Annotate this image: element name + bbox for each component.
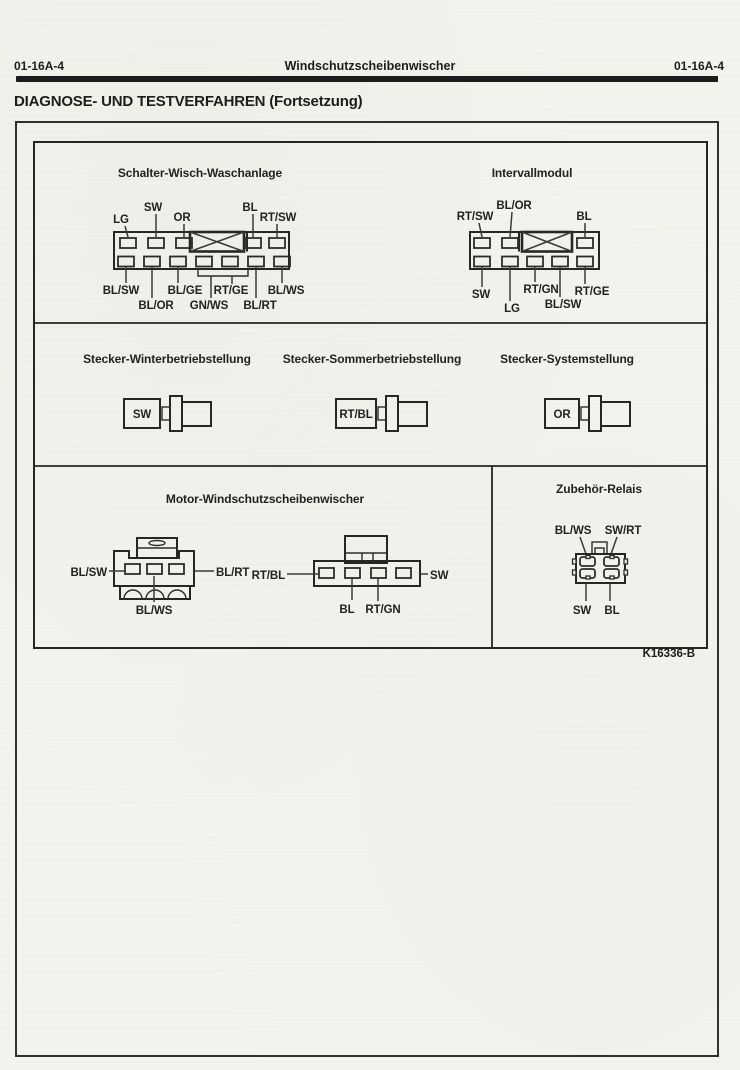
pin xyxy=(196,257,212,267)
wire-label: BL/OR xyxy=(138,300,174,312)
panel-title: Stecker-Systemstellung xyxy=(500,352,634,366)
panel-zubehoer-relais: Zubehör-Relais BL/WS SW/RT xyxy=(555,482,643,617)
pin xyxy=(319,568,334,578)
stecker-systemstellung: Stecker-Systemstellung OR xyxy=(500,352,634,431)
wire-label: RT/BL xyxy=(252,570,285,582)
figure-box: Schalter-Wisch-Waschanlage xyxy=(33,141,708,649)
figure-code: K16336-B xyxy=(460,648,695,660)
page-number-right: 01-16A-4 xyxy=(674,59,724,73)
wire-label: BL/WS xyxy=(555,525,592,537)
wire-label: BL/RT xyxy=(216,567,249,579)
wire-label: BL/RT xyxy=(243,300,276,312)
panel-title: Stecker-Sommerbetriebstellung xyxy=(283,352,462,366)
wire-label: BL/SW xyxy=(70,567,107,579)
wire-label: BL/WS xyxy=(268,285,305,297)
pin xyxy=(170,257,186,267)
pin xyxy=(269,238,285,248)
pin xyxy=(120,238,136,248)
panel-motor-windschutzscheibenwischer: Motor-Windschutzscheibenwischer BL/SW xyxy=(70,492,448,617)
panel-title: Stecker-Winterbetriebstellung xyxy=(83,352,251,366)
wire-label: RT/GE xyxy=(214,285,249,297)
pin xyxy=(345,568,360,578)
pin xyxy=(552,257,568,267)
pin xyxy=(577,238,593,248)
wire-label: RT/GN xyxy=(365,604,400,616)
panel-title: Motor-Windschutzscheibenwischer xyxy=(166,492,365,506)
wire-label: BL/OR xyxy=(496,200,532,212)
pin xyxy=(248,257,264,267)
figure-diagram: Schalter-Wisch-Waschanlage xyxy=(35,143,706,647)
connector-intervallmodul: Intervallmodul xyxy=(457,166,610,315)
plug-icon xyxy=(581,396,630,431)
motor-connector-b: RT/BL SW BL RT/GN xyxy=(252,536,449,616)
wire-label: GN/WS xyxy=(190,300,229,312)
pin xyxy=(118,257,134,267)
bottom-strip xyxy=(120,586,190,599)
wire-label: SW xyxy=(133,409,152,421)
header-rule xyxy=(16,76,718,82)
motor-connector-a: BL/SW BL/RT BL/WS xyxy=(70,538,249,617)
connector-body xyxy=(314,561,420,586)
panel-title: Zubehör-Relais xyxy=(556,482,642,496)
section-heading: DIAGNOSE- UND TESTVERFAHREN (Fortsetzung… xyxy=(14,93,362,110)
pin xyxy=(474,238,490,248)
pin xyxy=(169,564,184,574)
wire-label: BL xyxy=(604,605,619,617)
pin-bracket xyxy=(198,269,248,276)
wire-label: LG xyxy=(504,303,520,315)
pin xyxy=(474,257,490,267)
wire-label: OR xyxy=(173,212,191,224)
wire-label: RT/GE xyxy=(575,286,610,298)
keyway-crossed-box xyxy=(190,232,247,252)
stecker-sommerbetriebstellung: Stecker-Sommerbetriebstellung RT/BL xyxy=(283,352,462,431)
wire-label: BL xyxy=(242,202,257,214)
relay-connector xyxy=(573,542,628,583)
pin xyxy=(502,257,518,267)
wire-label: BL/GE xyxy=(168,285,203,297)
pin xyxy=(274,257,290,267)
pin xyxy=(577,257,593,267)
wire-label: BL xyxy=(339,604,354,616)
pin xyxy=(148,238,164,248)
pin xyxy=(371,568,386,578)
connector-schalter-wisch-waschanlage: Schalter-Wisch-Waschanlage xyxy=(103,166,305,312)
wire-label: RT/GN xyxy=(523,284,558,296)
wire-label: BL/SW xyxy=(103,285,140,297)
wire-label: OR xyxy=(553,409,571,421)
pin xyxy=(222,257,238,267)
stecker-winterbetriebstellung: Stecker-Winterbetriebstellung SW xyxy=(83,352,251,431)
wire-label: BL/SW xyxy=(545,299,582,311)
plug-icon xyxy=(378,396,427,431)
panel-title: Schalter-Wisch-Waschanlage xyxy=(118,166,283,180)
keyway-crossed-box xyxy=(519,232,572,252)
pin xyxy=(144,257,160,267)
wire-label: SW xyxy=(472,289,491,301)
wire-label: RT/BL xyxy=(339,409,372,421)
wire-label: SW/RT xyxy=(605,525,642,537)
plug-icon xyxy=(162,396,211,431)
pin xyxy=(147,564,162,574)
page-title: Windschutzscheibenwischer xyxy=(0,59,740,73)
wire-label: SW xyxy=(144,202,163,214)
wire-label: RT/SW xyxy=(260,212,297,224)
pin xyxy=(396,568,411,578)
panel-title: Intervallmodul xyxy=(492,166,573,180)
pin xyxy=(125,564,140,574)
strip-humps xyxy=(124,590,186,599)
pin xyxy=(502,238,518,248)
wire-label: RT/SW xyxy=(457,211,494,223)
latch xyxy=(345,536,387,563)
wire-label: SW xyxy=(430,570,449,582)
pin xyxy=(527,257,543,267)
wire-label: SW xyxy=(573,605,592,617)
wire-label: BL xyxy=(576,211,591,223)
wire-label: LG xyxy=(113,214,129,226)
manual-page: 01-16A-4 Windschutzscheibenwischer 01-16… xyxy=(0,0,740,1070)
wire-label: BL/WS xyxy=(136,605,173,617)
